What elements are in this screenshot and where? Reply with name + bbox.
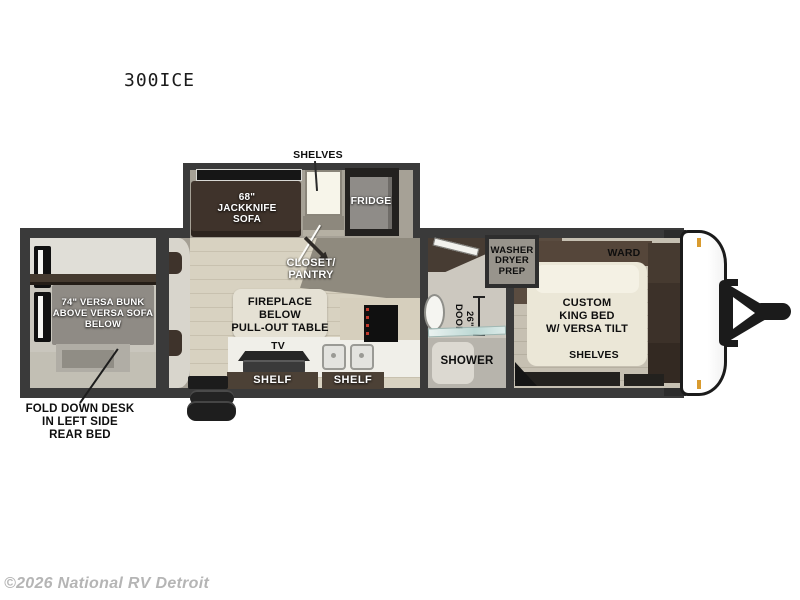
stove-icon xyxy=(364,305,398,342)
sink-drain xyxy=(331,353,336,358)
bedroom-rug xyxy=(624,374,664,386)
entry-mat xyxy=(188,376,228,389)
shelf-left-label: SHELF xyxy=(253,374,292,387)
slide-window-icon xyxy=(196,169,302,181)
shelves-cabinet-base xyxy=(303,216,344,236)
marker-light-icon xyxy=(697,238,701,247)
wall-bottom xyxy=(20,388,684,398)
bed-pillows xyxy=(535,265,639,293)
ward-label: WARD xyxy=(598,247,650,259)
panel-accent xyxy=(169,330,182,356)
entry-steps-icon xyxy=(187,401,236,421)
toilet-icon xyxy=(424,294,445,331)
fold-down-desk-label: FOLD DOWN DESK IN LEFT SIDE REAR BED xyxy=(17,403,143,443)
marker-light-icon xyxy=(697,380,701,389)
garage-shelf-bar xyxy=(30,274,156,285)
wall-garage-divider xyxy=(156,238,169,388)
watermark: ©2026 National RV Detroit xyxy=(4,575,209,593)
window-glass xyxy=(38,296,43,338)
washer-dryer-prep-box: WASHER DRYER PREP xyxy=(485,235,539,288)
king-bed-label: CUSTOM KING BED W/ VERSA TILT xyxy=(522,297,652,337)
shelves-bed-bottom-label: SHELVES xyxy=(556,349,632,361)
wardrobe-right xyxy=(648,243,682,383)
shelf-right-label: SHELF xyxy=(334,374,373,387)
wall-left xyxy=(20,228,30,398)
shelves-cabinet xyxy=(305,170,342,216)
hitch-post xyxy=(719,280,729,346)
door-measure-cap xyxy=(473,296,485,298)
sink-drain xyxy=(359,353,364,358)
floorplan-canvas: 300ICE 74" VERSA BUNK ABOVE VERSA SOFA B… xyxy=(0,0,800,600)
closet-pantry-label: CLOSET/ PANTRY xyxy=(277,257,345,281)
bunk-label: 74" VERSA BUNK ABOVE VERSA SOFA BELOW xyxy=(48,298,158,331)
hitch-coupler-icon xyxy=(758,303,791,320)
stove-burners xyxy=(366,308,369,338)
washer-prep-label: WASHER DRYER PREP xyxy=(491,246,534,278)
fridge-label: FRIDGE xyxy=(346,195,396,207)
sofa-label: 68" JACKKNIFE SOFA xyxy=(197,192,297,226)
model-title: 300ICE xyxy=(124,70,195,91)
shelves-top-label: SHELVES xyxy=(284,149,352,161)
shelf-bar-right: SHELF xyxy=(322,372,384,389)
shower-label: SHOWER xyxy=(430,355,504,368)
shelf-bar-left: SHELF xyxy=(227,372,318,389)
fireplace-label: FIREPLACE BELOW PULL-OUT TABLE xyxy=(222,296,338,336)
panel-accent xyxy=(169,252,182,274)
tv-label: TV xyxy=(258,340,298,352)
